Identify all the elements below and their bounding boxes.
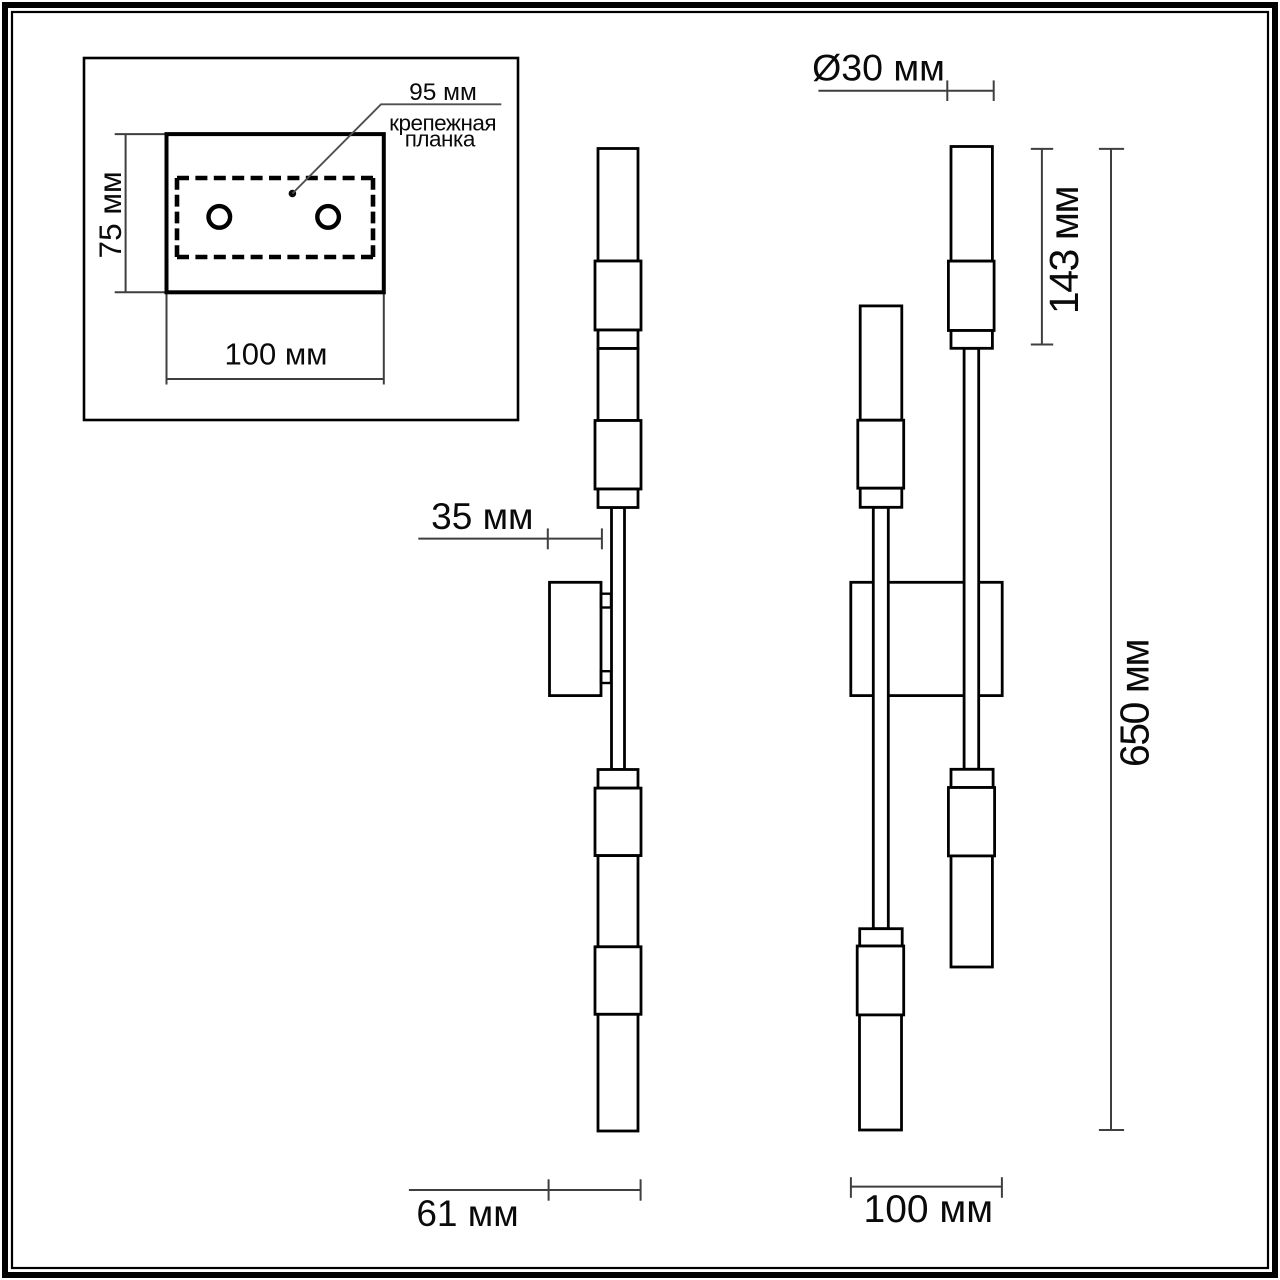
svg-text:75 мм: 75 мм [92, 171, 128, 258]
svg-text:Ø30 мм: Ø30 мм [812, 46, 945, 88]
svg-text:100 мм: 100 мм [864, 1188, 994, 1231]
svg-text:планка: планка [405, 127, 476, 152]
svg-text:650 мм: 650 мм [1112, 640, 1158, 767]
svg-text:35 мм: 35 мм [431, 496, 533, 537]
svg-text:61 мм: 61 мм [416, 1193, 518, 1234]
svg-text:95 мм: 95 мм [409, 79, 477, 106]
svg-text:100 мм: 100 мм [225, 336, 328, 371]
svg-text:143 мм: 143 мм [1041, 187, 1087, 314]
